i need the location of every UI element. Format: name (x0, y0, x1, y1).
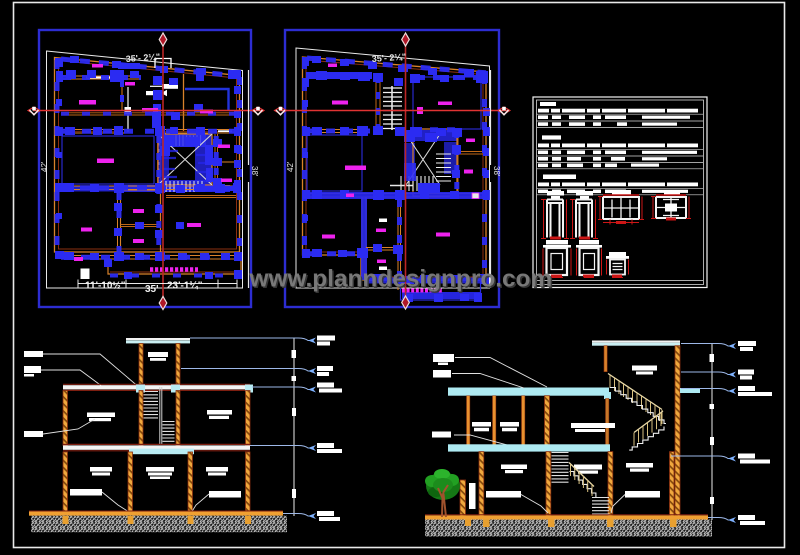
svg-text:42': 42' (286, 161, 295, 172)
svg-text:38': 38' (250, 166, 259, 177)
svg-text:42': 42' (40, 161, 49, 172)
svg-text:38': 38' (492, 166, 501, 177)
svg-text:www.planndesignpro.com: www.planndesignpro.com (249, 266, 553, 293)
svg-text:23'-1¼": 23'-1¼" (167, 281, 203, 292)
svg-text:11'-10½": 11'-10½" (85, 281, 126, 292)
svg-text:35': 35' (145, 284, 159, 295)
